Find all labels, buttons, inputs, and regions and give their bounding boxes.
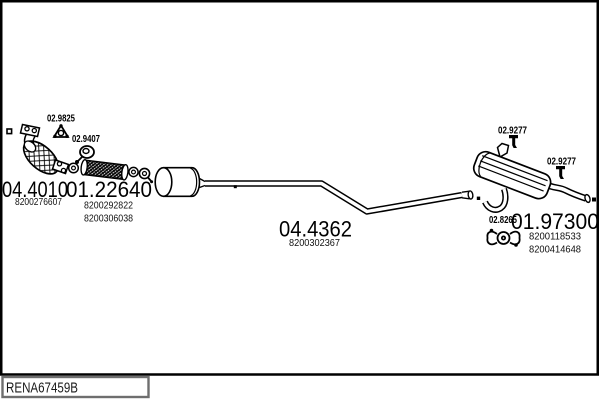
drawing-code-box: RENA67459B [3, 377, 149, 397]
flange-bolt [25, 127, 29, 131]
pipe-outline [205, 184, 462, 212]
fitting-code-front-clamp: 02.9407 [72, 134, 100, 145]
drawing-code: RENA67459B [6, 381, 78, 397]
fitting-code-hanger-top: 02.9277 [498, 126, 527, 137]
fitting-code-rear-clamp: 02.8265 [489, 215, 517, 226]
intermediate-pipe [205, 184, 473, 212]
oe-ref-catalyst: 8200276607 [15, 196, 62, 208]
oe-ref-rear-2: 8200414648 [529, 244, 581, 256]
flange-bolt [61, 168, 65, 172]
flange-bolt [32, 129, 36, 133]
flex-flange-ring [72, 166, 76, 170]
oe-ref-rear-1: 8200118533 [529, 231, 581, 243]
centre-silencer-assembly [155, 168, 205, 197]
tailpipe-open-end [584, 194, 591, 203]
parts-diagram-page: 04.4010 8200276607 01.22640 8200292822 8… [0, 0, 600, 400]
outlet-cone [200, 179, 206, 188]
oe-ref-flex-2: 8200306038 [84, 213, 133, 225]
rubber-hanger-icon-1 [509, 135, 518, 148]
oe-ref-flex-1: 8200292822 [84, 200, 133, 212]
flange-bolt [57, 162, 61, 166]
hanger-bracket [498, 144, 509, 158]
pipe-open-end [468, 191, 474, 200]
coupler-ring [132, 170, 136, 174]
joint-clamp [143, 172, 147, 176]
fitting-code-gasket: 02.9825 [47, 114, 75, 125]
mount-marker-left [7, 129, 12, 134]
mount-marker-mid [234, 185, 237, 188]
mount-marker-rear [477, 197, 480, 200]
exhaust-diagram: 04.4010 8200276607 01.22640 8200292822 8… [0, 0, 600, 400]
mount-marker-right [592, 198, 596, 202]
rear-silencer-assembly [471, 144, 596, 210]
silencer-end-cap [155, 168, 172, 197]
fitting-code-hanger-rear: 02.9277 [547, 157, 576, 168]
oe-ref-centre-silencer: 8200302367 [289, 237, 340, 249]
rubber-hanger-icon-2 [556, 166, 565, 179]
triangle-gasket-icon [53, 124, 68, 138]
part-number-flex-pipe: 01.22640 [66, 177, 152, 202]
